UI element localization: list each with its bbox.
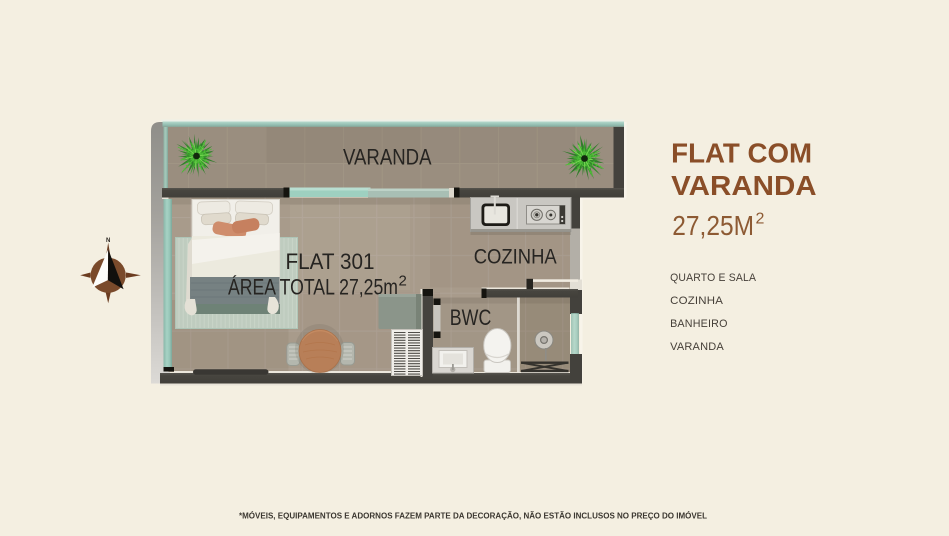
svg-text:VARANDA: VARANDA	[343, 145, 432, 170]
svg-text:COZINHA: COZINHA	[474, 244, 558, 268]
svg-text:FLAT 301: FLAT 301	[286, 249, 375, 274]
svg-text:QUARTO E SALA: QUARTO E SALA	[670, 272, 756, 284]
svg-text:27,25M: 27,25M	[672, 210, 754, 241]
svg-text:VARANDA: VARANDA	[671, 170, 816, 201]
svg-text:2: 2	[399, 273, 407, 290]
svg-text:*MÓVEIS, EQUIPAMENTOS E ADORNO: *MÓVEIS, EQUIPAMENTOS E ADORNOS FAZEM PA…	[239, 512, 707, 521]
svg-text:VARANDA: VARANDA	[670, 341, 724, 353]
svg-text:BANHEIRO: BANHEIRO	[670, 318, 728, 330]
svg-text:FLAT COM: FLAT COM	[671, 137, 812, 168]
svg-text:ÁREA TOTAL 27,25m: ÁREA TOTAL 27,25m	[228, 275, 398, 300]
svg-text:N: N	[106, 238, 110, 244]
svg-text:BWC: BWC	[450, 305, 492, 330]
svg-text:COZINHA: COZINHA	[670, 295, 723, 307]
svg-text:2: 2	[756, 211, 765, 228]
